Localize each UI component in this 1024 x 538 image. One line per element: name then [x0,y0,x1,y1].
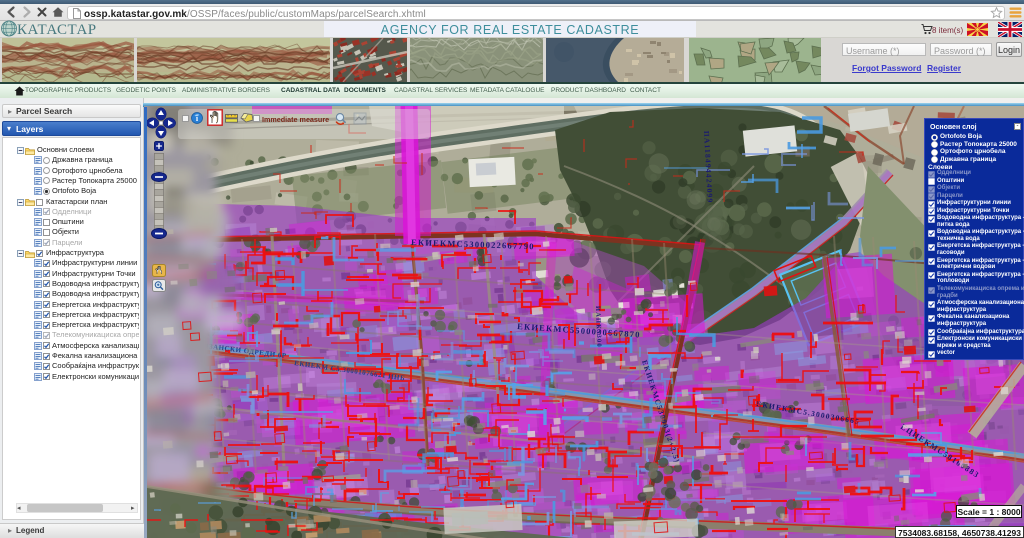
svg-text:ИАПК5300: ИАПК5300 [594,306,602,348]
